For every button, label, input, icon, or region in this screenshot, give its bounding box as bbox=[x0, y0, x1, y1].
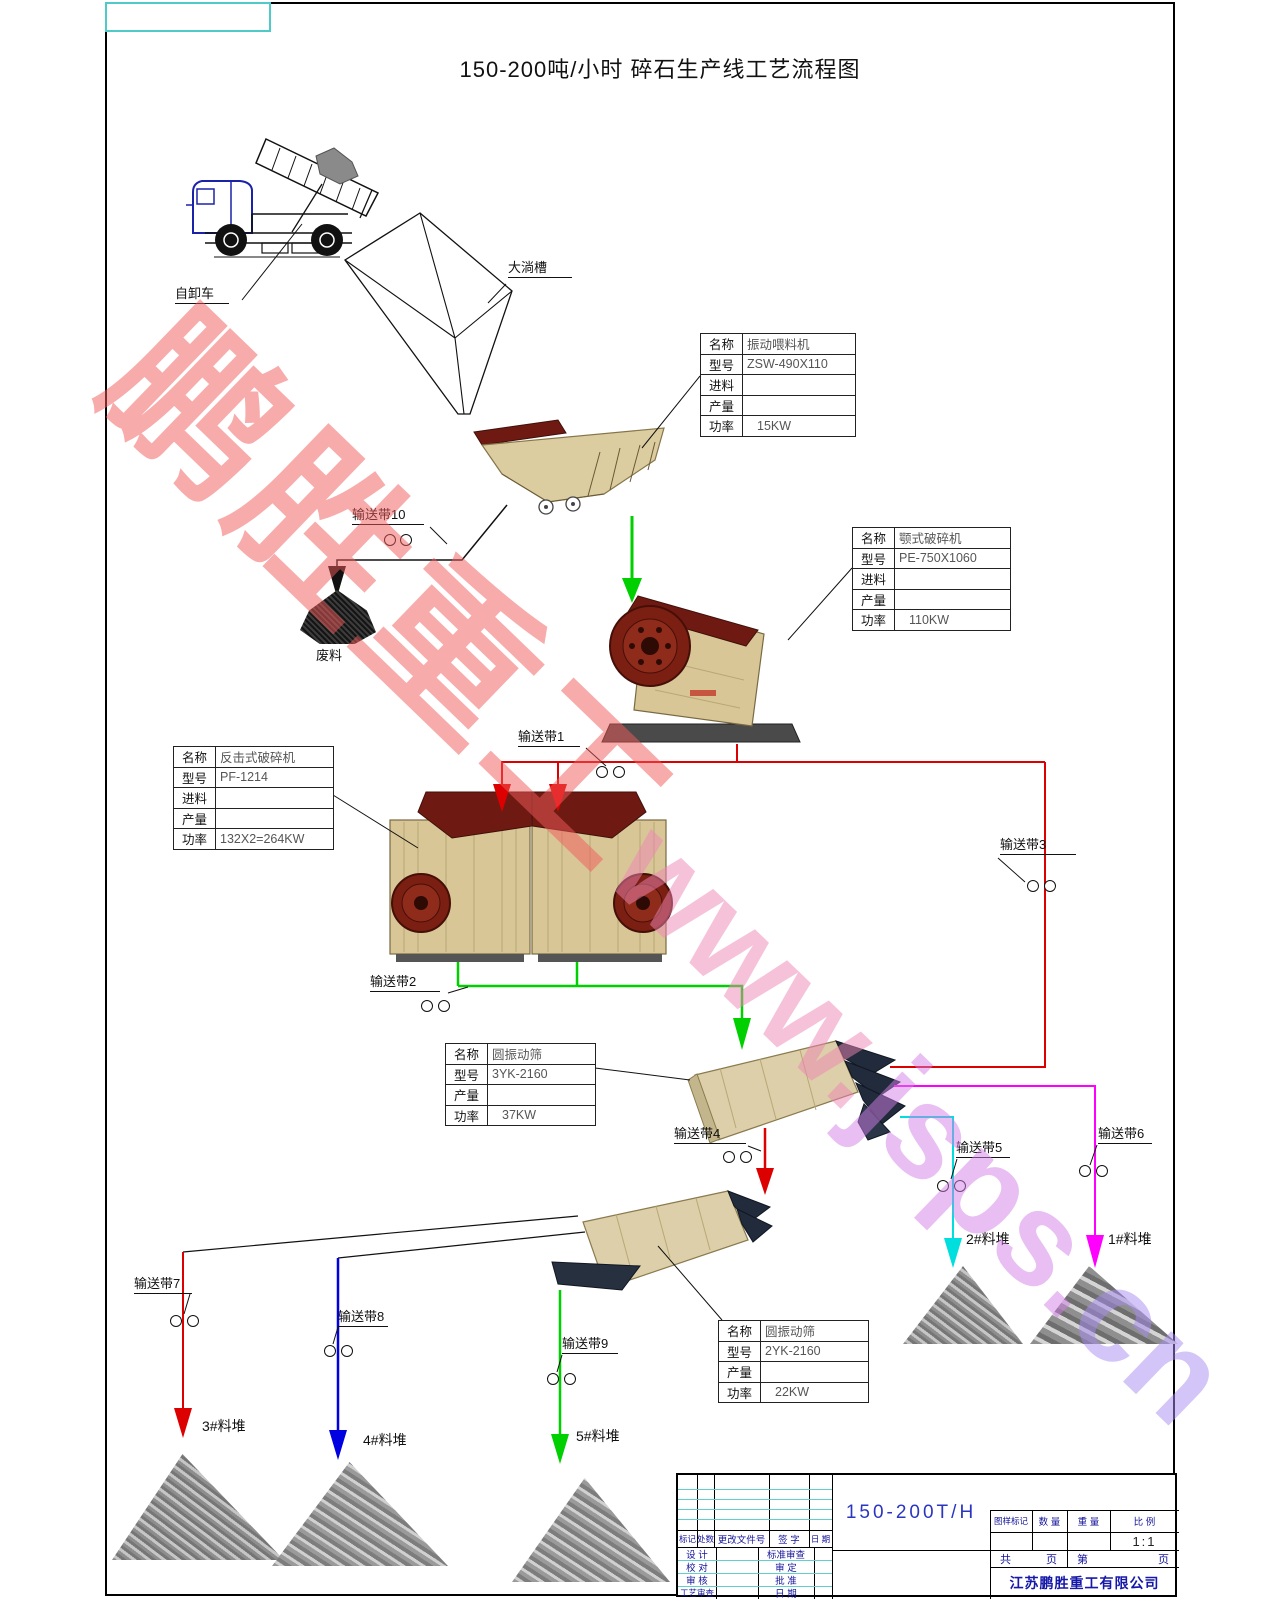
spec-col-scale: 比 例 bbox=[1110, 1510, 1179, 1532]
hopper-graphic bbox=[345, 213, 512, 414]
pile-5-label: 5#料堆 bbox=[576, 1426, 620, 1446]
pile-2-label: 2#料堆 bbox=[966, 1229, 1010, 1249]
hopper-label: 大淌槽 bbox=[508, 260, 572, 278]
belt2-line bbox=[458, 962, 742, 1018]
jaw-crusher-graphic bbox=[602, 596, 800, 742]
impact-crusher-right-graphic bbox=[532, 792, 672, 962]
pile-4-label: 4#料堆 bbox=[363, 1430, 407, 1450]
tipped-bed bbox=[256, 139, 378, 216]
rev-col-count: 处数 bbox=[697, 1530, 714, 1547]
dump-truck-graphic bbox=[186, 139, 378, 257]
pages-total: 共 页 bbox=[990, 1550, 1067, 1567]
waste-label: 废料 bbox=[316, 648, 342, 664]
sign-design: 设 计 bbox=[678, 1547, 716, 1560]
jaw-crusher-spec-table: 名称颚式破碎机 型号PE-750X1060 进料 产量 功率110KW bbox=[852, 527, 1011, 631]
rev-col-docno: 更改文件号 bbox=[714, 1530, 769, 1547]
pile-1-label: 1#料堆 bbox=[1108, 1229, 1152, 1249]
belt-3-label: 输送带3 bbox=[1000, 837, 1076, 855]
belt-4-label: 输送带4 bbox=[674, 1126, 746, 1144]
sign-standard-review: 标准审查 bbox=[758, 1547, 814, 1560]
spec-col-qty: 数 量 bbox=[1032, 1510, 1067, 1532]
belt-6-label: 输送带6 bbox=[1098, 1126, 1152, 1144]
rock-load bbox=[316, 148, 358, 184]
belt-2-label: 输送带2 bbox=[370, 974, 440, 992]
vibrating-screen-2-graphic bbox=[552, 1191, 772, 1290]
page-title: 150-200吨/小时 碎石生产线工艺流程图 bbox=[410, 52, 910, 84]
belt-9-label: 输送带9 bbox=[562, 1336, 618, 1354]
screen-2-spec-table: 名称圆振动筛 型号2YK-2160 产量 功率22KW bbox=[718, 1320, 869, 1403]
rev-col-mark: 标记 bbox=[678, 1530, 697, 1547]
rear-wheel bbox=[311, 224, 343, 256]
spec-col-weight: 重 量 bbox=[1067, 1510, 1110, 1532]
sign-audit: 审 核 bbox=[678, 1573, 716, 1586]
belt-7-label: 输送带7 bbox=[134, 1276, 192, 1294]
vibrating-feeder-graphic bbox=[474, 420, 664, 514]
screen-1-spec-table: 名称圆振动筛 型号3YK-2160 产量 功率37KW bbox=[445, 1043, 596, 1126]
impact-crusher-spec-table: 名称反击式破碎机 型号PF-1214 进料 产量 功率132X2=264KW bbox=[173, 746, 334, 850]
belt5-line bbox=[900, 1117, 953, 1238]
rev-col-date: 日 期 bbox=[809, 1530, 832, 1547]
brand-mark bbox=[690, 690, 716, 696]
scale-value: 1:1 bbox=[1110, 1532, 1179, 1550]
pile-3-label: 3#料堆 bbox=[202, 1416, 246, 1436]
sign-date: 日 期 bbox=[758, 1586, 814, 1599]
impact-crusher-left-graphic bbox=[390, 792, 532, 962]
pages-sheet: 第 页 bbox=[1067, 1550, 1179, 1567]
belt6-line bbox=[894, 1086, 1095, 1235]
spec-col-mark: 图样标记 bbox=[990, 1510, 1032, 1532]
company-name: 江苏鹏胜重工有限公司 bbox=[990, 1567, 1179, 1599]
drawing-model: 150-200T/H bbox=[832, 1475, 990, 1550]
flowchart-page: 150-200吨/小时 碎石生产线工艺流程图 bbox=[0, 0, 1280, 1600]
belt-10-label: 输送带10 bbox=[352, 507, 424, 525]
front-wheel bbox=[215, 224, 247, 256]
rev-col-sign: 签 字 bbox=[769, 1530, 809, 1547]
sign-check: 校 对 bbox=[678, 1560, 716, 1573]
belt-5-label: 输送带5 bbox=[956, 1140, 1010, 1158]
sign-approve2: 批 准 bbox=[758, 1573, 814, 1586]
truck-label: 自卸车 bbox=[175, 286, 229, 304]
title-block: 标记 处数 更改文件号 签 字 日 期 设 计 校 对 审 核 工艺审查 标准审… bbox=[676, 1473, 1177, 1597]
sign-approve1: 审 定 bbox=[758, 1560, 814, 1573]
belt-1-label: 输送带1 bbox=[518, 729, 580, 747]
belt-8-label: 输送带8 bbox=[338, 1309, 388, 1327]
feeder-spec-table: 名称振动喂料机 型号ZSW-490X110 进料 产量 功率15KW bbox=[700, 333, 856, 437]
sign-process-review: 工艺审查 bbox=[678, 1586, 716, 1599]
